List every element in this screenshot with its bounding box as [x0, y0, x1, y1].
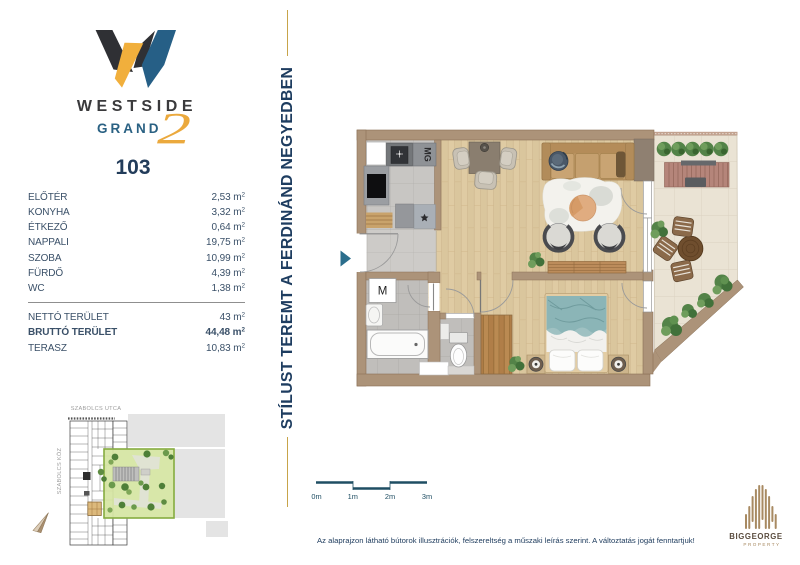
svg-text:SZABOLCS UTCA: SZABOLCS UTCA: [71, 406, 122, 412]
svg-text:3m: 3m: [422, 492, 432, 501]
svg-text:BIGGEORGE: BIGGEORGE: [729, 532, 783, 541]
svg-text:PROPERTY: PROPERTY: [743, 542, 780, 547]
svg-text:1m: 1m: [348, 492, 358, 501]
svg-text:M: M: [378, 286, 388, 298]
svg-text:0m: 0m: [311, 492, 321, 501]
svg-text:SZABOLCS KÖZ: SZABOLCS KÖZ: [56, 447, 63, 494]
svg-text:MG: MG: [423, 147, 433, 162]
svg-text:2m: 2m: [385, 492, 395, 501]
